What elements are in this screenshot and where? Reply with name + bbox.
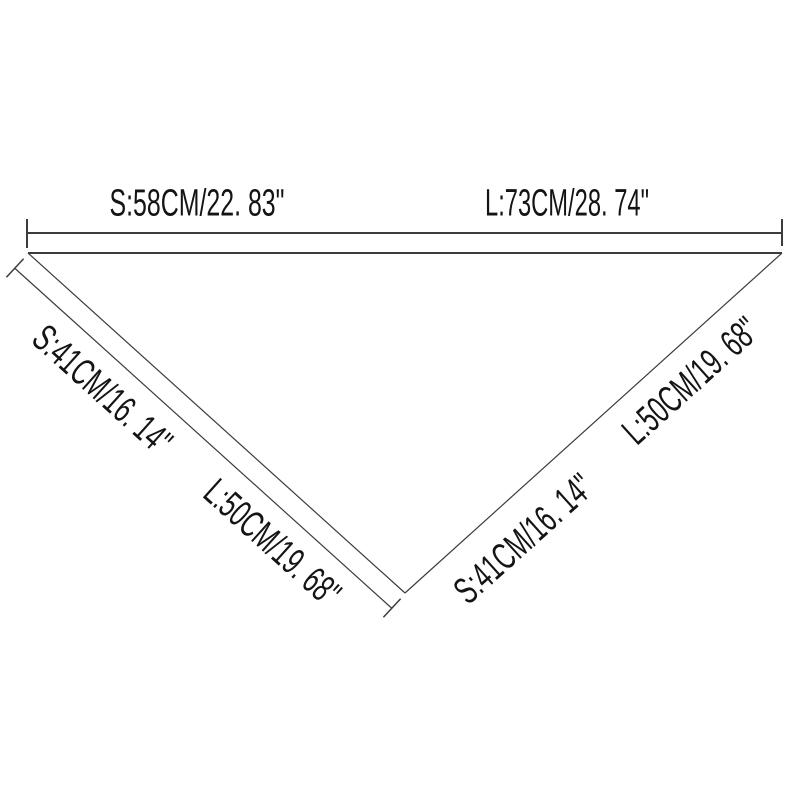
left-edge-long-measurement-label: L:50CM/19. 68" xyxy=(195,471,348,615)
size-chart-diagram: S:58CM/22. 83" L:73CM/28. 74" S:41CM/16.… xyxy=(0,0,800,800)
triangle-left-edge xyxy=(28,253,405,593)
triangle-right-edge xyxy=(405,253,782,593)
top-edge-long-measurement-label: L:73CM/28. 74" xyxy=(485,183,649,225)
right-edge-short-measurement-label: S:41CM/16. 14" xyxy=(446,466,602,612)
left-edge-short-measurement-label: S:41CM/16. 14" xyxy=(24,317,180,463)
left-dimension-line xyxy=(15,268,392,608)
triangle-scarf-dimension-drawing: S:58CM/22. 83" L:73CM/28. 74" S:41CM/16.… xyxy=(0,0,800,800)
left-dimension-tick-bottom xyxy=(383,599,400,618)
top-edge-short-measurement-label: S:58CM/22. 83" xyxy=(110,183,285,225)
right-edge-long-measurement-label: L:50CM/19. 68" xyxy=(615,309,768,453)
